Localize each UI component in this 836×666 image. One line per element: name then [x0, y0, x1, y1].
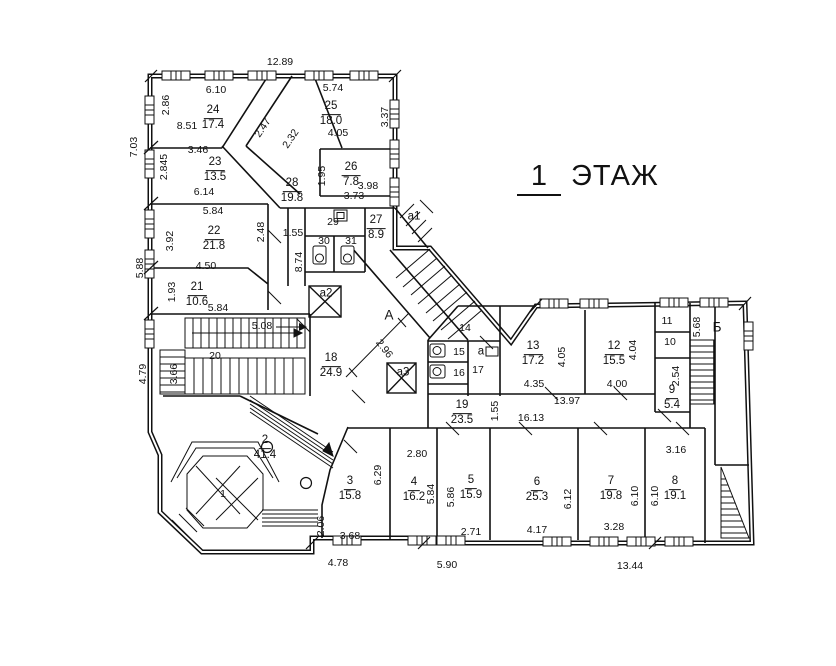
- room-29-label: 29: [327, 217, 339, 228]
- dim-r25-right: 3.37: [380, 107, 391, 127]
- dim-stair-b-height: 5.68: [692, 317, 703, 337]
- plan-title-number: 1: [517, 160, 561, 196]
- zone-corridor-a-label: А: [384, 308, 393, 322]
- dim-r20-top: 5.08: [252, 321, 272, 332]
- dim-r7-right: 6.10: [630, 486, 641, 506]
- room-23-label: 2313.5: [204, 152, 226, 184]
- room-30-label: 30: [318, 236, 330, 247]
- plan-title: 1ЭТАЖ: [517, 160, 659, 196]
- dim-r5-bottom: 2.71: [461, 527, 481, 538]
- room-16-label: 16: [453, 368, 465, 379]
- room-17-label: 17: [472, 365, 484, 376]
- room-12-label: 1215.5: [603, 336, 625, 368]
- room-11-label: 11: [662, 316, 673, 327]
- plan-title-word: ЭТАЖ: [571, 160, 659, 192]
- dim-r22-top: 5.84: [203, 206, 223, 217]
- dim-r13-bottom: 4.35: [524, 379, 544, 390]
- dim-r22-bottom: 4.50: [196, 261, 216, 272]
- room-21-label: 2110.6: [186, 277, 208, 309]
- dim-bottom-right: 13.44: [617, 561, 643, 572]
- dim-r8-left: 6.10: [650, 486, 661, 506]
- dim-r24-width: 6.10: [206, 85, 226, 96]
- room-22-label: 2221.8: [203, 221, 225, 253]
- room-24-label: 2417.4: [202, 100, 224, 132]
- room-20-label: 20: [209, 351, 221, 362]
- room-25-label: 2518.0: [320, 96, 342, 128]
- zone-a1-label: а1: [408, 211, 421, 223]
- zone-a3-label: а3: [397, 367, 410, 379]
- dim-r20-left: 3.66: [169, 364, 180, 384]
- dim-r22-right: 2.48: [256, 222, 267, 242]
- dim-left-lower: 4.79: [138, 364, 149, 384]
- room-5-label: 515.9: [460, 470, 482, 502]
- room-13-label: 1317.2: [522, 336, 544, 368]
- room-3-label: 315.8: [339, 471, 361, 503]
- dim-r24-left: 2.86: [161, 95, 172, 115]
- room-31-label: 31: [345, 236, 357, 247]
- dim-r26-left: 1.95: [317, 166, 328, 186]
- room-14-label: 14: [459, 323, 471, 334]
- dim-r7-bottom: 3.28: [604, 522, 624, 533]
- room-10-label: 10: [664, 337, 676, 348]
- zone-b-label: Б: [713, 320, 722, 334]
- dim-r25-width: 5.74: [323, 83, 343, 94]
- dim-r4-right: 5.84: [426, 484, 437, 504]
- room-7-label: 719.8: [600, 471, 622, 503]
- floor-plan-drawing: [0, 0, 836, 666]
- room-27-label: 278.9: [367, 210, 386, 242]
- floor-plan: 1ЭТАЖ 2417.4 2518.0 2313.5 267.8 2819.8 …: [0, 0, 836, 666]
- dim-r12-right: 4.04: [628, 340, 639, 360]
- room-6-label: 625.3: [526, 472, 548, 504]
- dim-r28-right: 3.73: [344, 191, 364, 202]
- dim-r21-bottom: 5.84: [208, 303, 228, 314]
- room-18-label: 1824.9: [320, 348, 342, 380]
- dim-r3-bottom: 3.68: [340, 531, 360, 542]
- dim-r21-left: 1.93: [167, 282, 178, 302]
- room-2-label: 241.4: [254, 430, 276, 462]
- dim-r24-bottom: 8.51: [177, 121, 197, 132]
- room-1-label: 1: [220, 489, 226, 500]
- dim-bottom-left: 4.78: [328, 558, 348, 569]
- dim-c29-left: 1.55: [283, 228, 303, 239]
- room-8-label: 819.1: [664, 471, 686, 503]
- dim-r23-left: 2.845: [159, 154, 170, 180]
- dim-r23-bottom: 6.14: [194, 187, 214, 198]
- dim-left-middle: 5.88: [135, 258, 146, 278]
- dim-r5-left: 5.86: [446, 487, 457, 507]
- dim-r23-top: 3.46: [188, 145, 208, 156]
- dim-r3-left: 2.06: [316, 516, 327, 536]
- room-28-label: 2819.8: [281, 173, 303, 205]
- dim-r6-bottom: 4.17: [527, 525, 547, 536]
- dim-r12-bottom: 4.00: [607, 379, 627, 390]
- dim-r25-bottom: 4.05: [328, 128, 348, 139]
- dim-r9-left: 2.54: [671, 366, 682, 386]
- zone-a2-label: а2: [320, 288, 333, 300]
- dim-r3-right: 6.29: [373, 465, 384, 485]
- dim-top-width: 12.89: [267, 57, 293, 68]
- dim-r13-right: 4.05: [557, 347, 568, 367]
- dim-r19-right: 1.55: [490, 401, 501, 421]
- dim-r22-left: 3.92: [165, 231, 176, 251]
- dim-c29-height: 8.74: [294, 252, 305, 272]
- dim-r8-top: 3.16: [666, 445, 686, 456]
- dim-r6-right: 6.12: [563, 489, 574, 509]
- dim-r4-top: 2.80: [407, 449, 427, 460]
- room-4-label: 416.2: [403, 472, 425, 504]
- dim-left-upper: 7.03: [129, 137, 140, 157]
- room-15-label: 15: [453, 347, 465, 358]
- dim-bottom-middle: 5.90: [437, 560, 457, 571]
- zone-a-label: а: [478, 346, 484, 358]
- dim-chain-16-13: 16.13: [518, 413, 544, 424]
- room-19-label: 1923.5: [451, 395, 473, 427]
- dim-chain-13-97: 13.97: [554, 396, 580, 407]
